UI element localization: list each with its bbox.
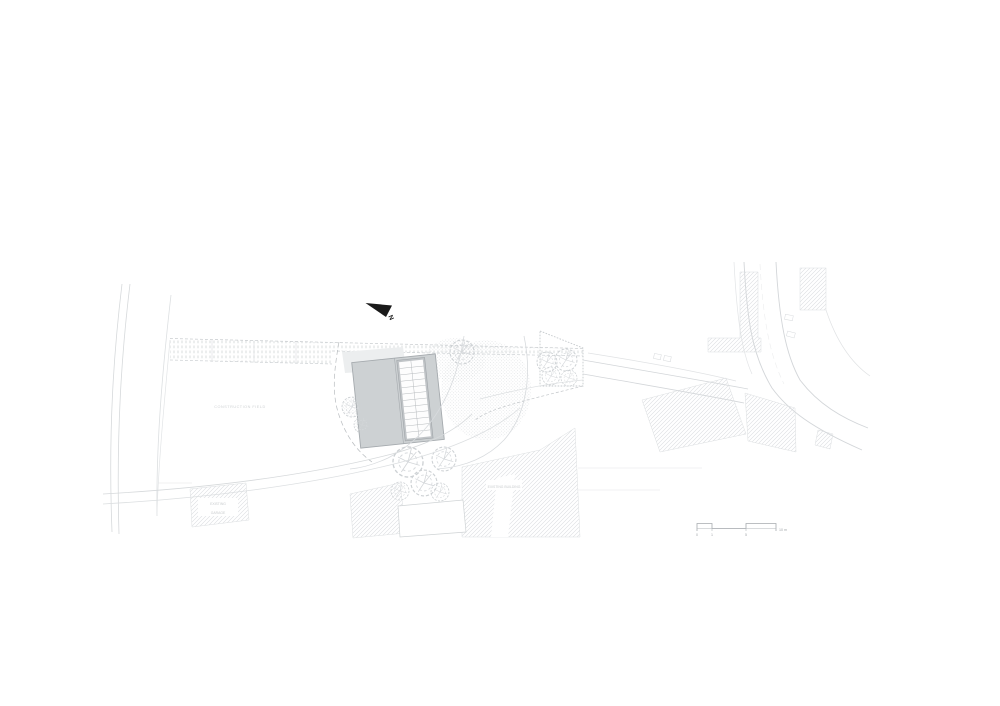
north-arrow: N: [366, 303, 395, 322]
scale-tick-10m: 10 m: [779, 528, 787, 532]
north-arrow-label: N: [386, 314, 394, 321]
building-hatch-south-a: [350, 483, 406, 538]
site-area-label: CONSTRUCTION FIELD: [214, 405, 265, 409]
site-plan-page: CONSTRUCTION FIELD EXISTING BUILDING EXI…: [0, 0, 1000, 706]
building-hatch-northeast: [800, 268, 826, 310]
building-hatch-southeast: [815, 430, 833, 449]
north-arrow-icon: [366, 303, 393, 317]
existing-building-label: EXISTING BUILDING: [488, 485, 521, 489]
garage-label-2: GARAGE: [211, 511, 226, 515]
site-plan-drawing: CONSTRUCTION FIELD EXISTING BUILDING EXI…: [0, 0, 1000, 706]
road-west: [111, 284, 171, 534]
building-hatch-l-shape: [708, 272, 761, 352]
scale-tick-5: 5: [745, 533, 747, 537]
scale-tick-1: 1: [711, 533, 713, 537]
scale-bar: 0 1 5 10 m: [696, 524, 787, 538]
building-hatch-middle: [642, 378, 746, 452]
courtyard: [398, 500, 466, 537]
building: [352, 354, 445, 448]
building-hatch-right: [745, 393, 796, 452]
garage-label-1: EXISTING: [210, 502, 226, 506]
scale-tick-0: 0: [696, 533, 698, 537]
